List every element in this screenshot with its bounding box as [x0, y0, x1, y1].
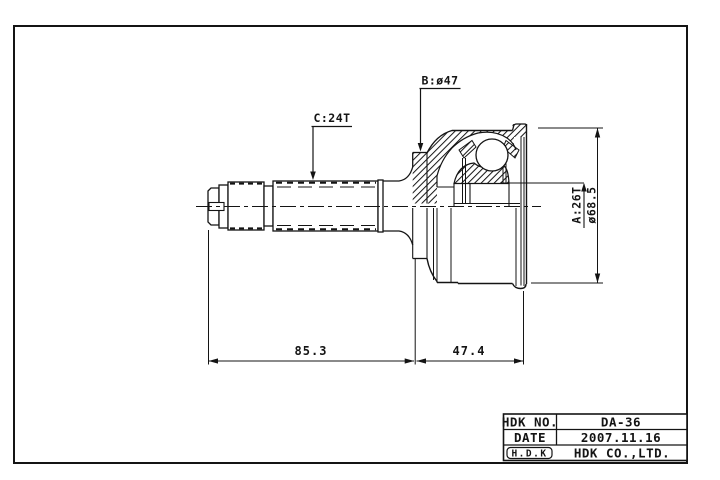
arrow-down — [310, 172, 316, 181]
shaft-spline-main — [273, 181, 378, 231]
drawing-sheet: C:24T B:ø47 A:26T ø68.5 85.3 — [0, 0, 720, 480]
arrow-left — [417, 358, 427, 363]
date-value: 2007.11.16 — [581, 430, 661, 445]
callout-shaft-spline-label: C:24T — [313, 111, 350, 125]
stub-shaft — [208, 180, 383, 232]
outer-race-section — [427, 124, 527, 204]
callout-inner-spline-label: A:26T — [570, 186, 584, 223]
arrow-down — [595, 274, 600, 284]
company-name: HDK CO.,LTD. — [574, 446, 670, 461]
arrow-right — [514, 358, 524, 363]
arrow-down — [418, 143, 424, 152]
part-no-label: HDK NO. — [502, 415, 558, 430]
cv-joint-technical-drawing: C:24T B:ø47 A:26T ø68.5 85.3 — [0, 0, 720, 480]
part-no-value: DA-36 — [601, 415, 641, 430]
arrow-left — [209, 358, 219, 363]
arrow-up — [595, 128, 600, 138]
callout-outer-dia-label: ø68.5 — [585, 186, 599, 223]
callout-boot-groove-label: B:ø47 — [421, 74, 458, 88]
title-block: HDK NO. DA-36 DATE 2007.11.16 H.D.K HDK … — [502, 414, 687, 461]
ball-bearing — [476, 139, 508, 171]
shaft-ring — [378, 180, 383, 232]
dim-shaft-length: 85.3 — [295, 344, 328, 358]
shaft-spline-short — [228, 182, 264, 230]
sheet-border — [14, 26, 687, 463]
shaft-fillet — [383, 167, 413, 245]
arrow-right — [405, 358, 415, 363]
hdk-logo-text: H.D.K — [511, 449, 547, 460]
shaft-neck — [264, 186, 273, 226]
date-label: DATE — [514, 430, 546, 445]
dim-joint-length: 47.4 — [453, 344, 486, 358]
callout-shaft-spline: C:24T — [310, 111, 352, 180]
boot-groove-band — [413, 153, 427, 204]
